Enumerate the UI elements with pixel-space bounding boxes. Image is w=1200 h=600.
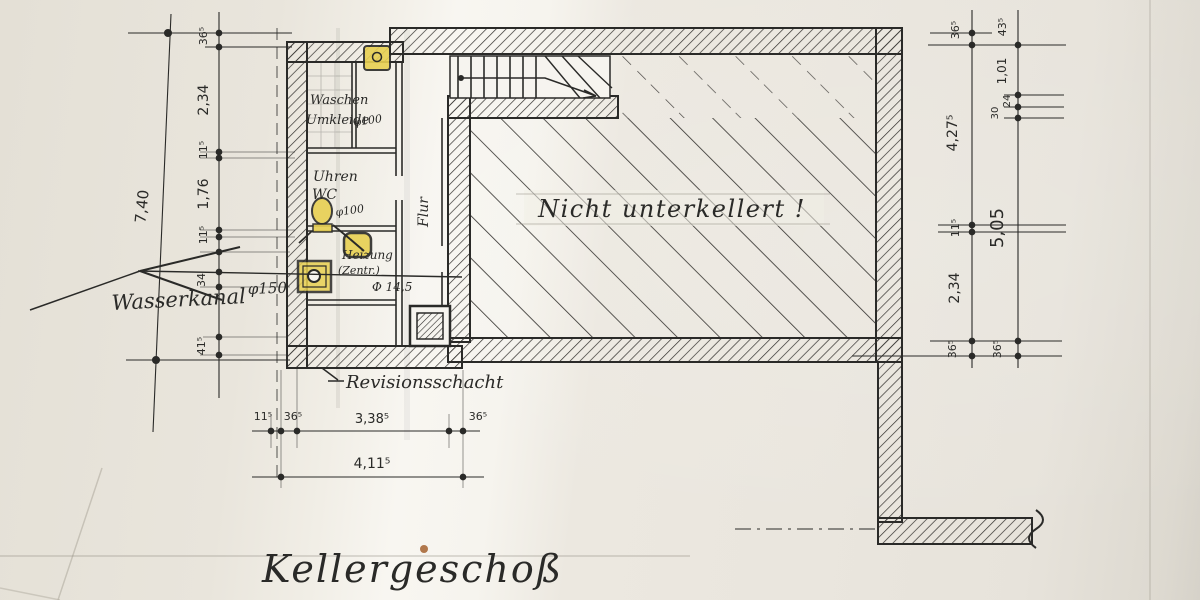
phi145-label: Φ 14,5 [372, 280, 412, 294]
nicht-unterkellert-label: Nicht unterkellert ! [537, 195, 806, 223]
dim-label: 36⁵ [284, 410, 302, 423]
revision-shaft [410, 306, 450, 346]
wall-inner-left [448, 96, 470, 342]
shower-fixture [364, 46, 390, 70]
dim-bottom-total: 4,11⁵ [354, 456, 391, 472]
unexcavated-dashed-hatch [618, 55, 876, 118]
phi100-umkleide-label: φ100 [353, 112, 383, 129]
dim-label: 34 [195, 273, 208, 287]
dim-label: 24 [1002, 95, 1013, 108]
dimension-labels-bottom: 11⁵ 36⁵ 3,38⁵ 36⁵ 4,11⁵ [254, 410, 487, 472]
dim-label: 3,38⁵ [355, 412, 389, 427]
dim-left-total: 7,40 [131, 189, 152, 224]
wall-extension-horizontal [878, 518, 1032, 544]
room-label-flur: Flur [416, 196, 432, 228]
dim-label: 36⁵ [469, 410, 487, 423]
room-label-heizung: Heizung [341, 248, 393, 262]
room-label-wc: WC [312, 187, 337, 203]
dim-label: 4,27⁵ [945, 115, 961, 152]
wall-inner-top [448, 96, 618, 118]
dim-label: 30 [990, 107, 1001, 120]
dim-label: 11⁵ [254, 410, 272, 423]
floor-plan-svg: Nicht unterkellert ! Waschen Umkleide φ1… [0, 0, 1200, 600]
phi100-wc-label: φ100 [335, 202, 365, 219]
wall-bottom-left-section [287, 346, 462, 368]
dim-label: 2,34 [196, 84, 212, 115]
dimension-labels-right: 36⁵ 4,27⁵ 11⁵ 2,34 36⁵ 43⁵ 1,01 24 30 5,… [945, 18, 1013, 358]
wall-top-main [390, 28, 902, 54]
paper-crease-line [58, 468, 102, 600]
revisionsschacht-annotation: Revisionsschacht [322, 368, 504, 393]
dim-label: 11⁵ [197, 141, 210, 159]
dim-label: 5,05 [987, 208, 1008, 248]
revisionsschacht-label: Revisionsschacht [345, 372, 504, 393]
dim-label: 2,34 [947, 272, 963, 303]
scanned-blueprint-page: Nicht unterkellert ! Waschen Umkleide φ1… [0, 0, 1200, 600]
wall-right [876, 28, 902, 362]
dim-label: 1,76 [196, 178, 212, 209]
wall-extension-vertical [878, 362, 902, 522]
area-label-group: Nicht unterkellert ! [516, 190, 830, 226]
wall-bottom-main [448, 338, 902, 362]
room-label-uhren: Uhren [313, 169, 358, 185]
dimension-chain-left [126, 12, 295, 432]
dim-label: 43⁵ [996, 18, 1009, 36]
dim-label: 11⁵ [197, 226, 210, 244]
dim-label: 36⁵ [991, 340, 1004, 358]
unexcavated-area-hatch [470, 118, 876, 338]
sump-drain-icon [308, 270, 320, 282]
staircase [450, 56, 612, 98]
phi150-label: φ150 [248, 279, 288, 298]
title-group: Kellergeschoß [0, 545, 690, 591]
wasserkanal-label: Wasserkanal [111, 284, 246, 315]
arrow-icon [140, 247, 240, 271]
wall-left [287, 42, 307, 368]
dim-label: 36⁵ [946, 340, 959, 358]
dim-label: 11⁵ [949, 219, 962, 237]
page-title: Kellergeschoß [261, 547, 563, 591]
dim-label: 36⁵ [197, 27, 210, 45]
dim-label: 1,01 [995, 58, 1009, 85]
room-label-waschen: Waschen [310, 93, 368, 108]
dim-label: 36⁵ [949, 21, 962, 39]
dim-label: 41⁵ [195, 337, 208, 355]
